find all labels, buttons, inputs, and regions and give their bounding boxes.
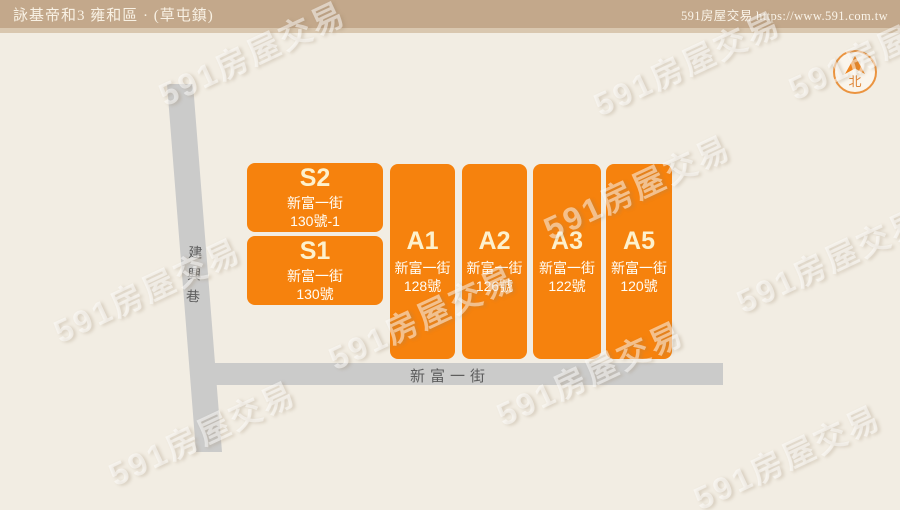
lot-address-street: 新富一街: [287, 268, 343, 284]
lot-block-s2: S2 新富一街130號-1: [247, 163, 383, 232]
lot-title: A5: [623, 228, 655, 256]
lot-address: 新富一街126號: [467, 259, 523, 295]
lot-address-number: 130號: [296, 286, 333, 302]
compass-north-label: 北: [848, 75, 861, 88]
lot-address-street: 新富一街: [539, 260, 595, 276]
header-bar: 詠基帝和3 雍和區 · (草屯鎮) 591房屋交易 https://www.59…: [0, 0, 900, 28]
lot-block-a3: A3 新富一街122號: [533, 164, 601, 359]
lot-address-number: 130號-1: [290, 213, 340, 229]
lot-title: A3: [551, 228, 583, 256]
lot-block-a5: A5 新富一街120號: [606, 164, 672, 359]
lot-address-number: 128號: [404, 278, 441, 294]
brand-and-url: 591房屋交易 https://www.591.com.tw: [681, 5, 888, 24]
lot-block-a2: A2 新富一街126號: [462, 164, 527, 359]
lot-address-street: 新富一街: [395, 260, 451, 276]
lot-address-number: 120號: [620, 278, 657, 294]
north-arrow-icon: [843, 56, 867, 74]
lot-title: A1: [407, 228, 439, 256]
header-divider: [0, 28, 900, 33]
north-compass: 北: [833, 50, 877, 94]
lot-address: 新富一街120號: [611, 259, 667, 295]
brand-label: 591房屋交易: [681, 9, 753, 23]
lot-address: 新富一街128號: [395, 259, 451, 295]
lot-address: 新富一街130號: [287, 267, 343, 303]
page-title: 詠基帝和3 雍和區 · (草屯鎮): [13, 4, 214, 25]
horizontal-road-label: 新富一街: [395, 365, 505, 386]
lot-title: S2: [300, 165, 331, 193]
site-plan-page: 詠基帝和3 雍和區 · (草屯鎮) 591房屋交易 https://www.59…: [0, 0, 900, 510]
lot-title: S1: [300, 238, 331, 266]
lot-address-street: 新富一街: [611, 260, 667, 276]
lot-block-a1: A1 新富一街128號: [390, 164, 455, 359]
lot-address-street: 新富一街: [287, 195, 343, 211]
lot-address: 新富一街130號-1: [287, 194, 343, 230]
lot-block-s1: S1 新富一街130號: [247, 236, 383, 305]
lot-address-number: 126號: [476, 278, 513, 294]
lot-address: 新富一街122號: [539, 259, 595, 295]
lot-address-number: 122號: [548, 278, 585, 294]
lot-address-street: 新富一街: [467, 260, 523, 276]
lot-title: A2: [479, 228, 511, 256]
brand-url: https://www.591.com.tw: [756, 9, 888, 23]
vertical-road-label: 建興巷: [182, 245, 205, 312]
